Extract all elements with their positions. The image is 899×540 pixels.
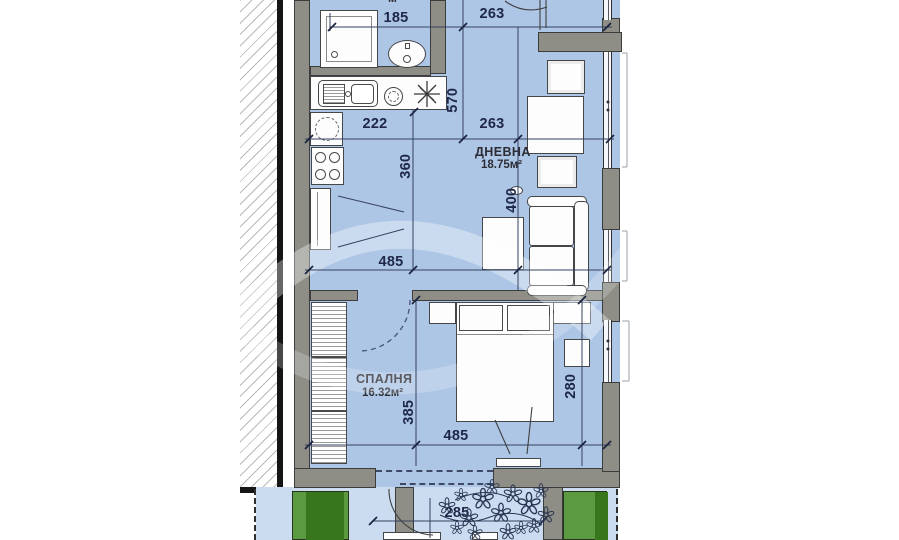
- wardrobe: [311, 302, 347, 464]
- shower-cabin: [320, 10, 378, 68]
- washing-machine: [310, 112, 343, 146]
- window-bedroom: [603, 320, 612, 382]
- kitchen-sink: [318, 80, 378, 107]
- sofa-armrest-bottom: [527, 285, 587, 296]
- wall-pier-corner: [602, 282, 620, 322]
- planter-right: [563, 491, 607, 540]
- dim-label-dining-depth: 400: [505, 180, 520, 220]
- nightstand: [564, 339, 590, 367]
- bed-shelf-left: [429, 302, 456, 324]
- dim-label-entry-width: 263: [472, 7, 512, 22]
- bed-bench: [496, 458, 541, 467]
- terrace-boundary-right: [616, 489, 618, 540]
- window-living-low: [603, 230, 612, 282]
- dim-label-bath-width: 185: [376, 11, 416, 26]
- dim-label-bedroom-right-depth: 280: [564, 366, 579, 406]
- window-entry: [603, 0, 612, 20]
- terrace-door-dashed-bottom: [400, 483, 493, 485]
- dim-label-bedroom-depth: 385: [402, 392, 417, 432]
- dim-label-bedroom-width: 485: [436, 429, 476, 444]
- dining-chair-top: [547, 60, 585, 94]
- wall-bedroom-bottom-right: [493, 468, 620, 488]
- terrace-pier-right: [543, 487, 563, 540]
- wall-pier-bedroom: [602, 382, 620, 472]
- planter-left: [292, 491, 349, 540]
- kitchen-pot: [384, 87, 403, 106]
- bed-shelf-right: [553, 302, 591, 324]
- dim-label-kitchen-width: 222: [355, 117, 395, 132]
- wall-left: [294, 0, 310, 488]
- sofa-back: [574, 201, 589, 291]
- dining-table: [527, 96, 584, 154]
- terrace-table-partial: [383, 532, 441, 540]
- hatch-band: [240, 0, 277, 489]
- bed: [456, 302, 554, 422]
- terrace-item-partial: [472, 532, 498, 540]
- sofa-seat-1: [529, 206, 574, 246]
- hatch-border: [277, 0, 283, 493]
- dim-label-hall-depth: 570: [446, 80, 461, 120]
- sofa-seat-2: [529, 246, 574, 286]
- tall-cabinet: [310, 188, 331, 250]
- wall-entry-band: [538, 32, 622, 52]
- dim-label-living-width: 485: [371, 255, 411, 270]
- dim-label-kitchen-depth: 360: [399, 146, 414, 186]
- window-living-long: [603, 52, 612, 168]
- bathroom-sink: [388, 40, 426, 68]
- floor-plan: м² 185 263 570 222 263 360 400 485 ДНЕВН…: [0, 0, 899, 540]
- room-label-bedroom: СПАЛНЯ: [356, 373, 412, 386]
- wall-bedroom-bottom-left: [294, 468, 376, 488]
- dim-label-living-top-width: 263: [472, 117, 512, 132]
- room-area-living: 18.75м²: [481, 160, 522, 172]
- terrace-door-dashed-top: [376, 470, 493, 472]
- terrace-boundary-left: [254, 489, 256, 540]
- stove: [311, 147, 344, 185]
- dining-chair-bottom: [537, 156, 577, 188]
- wall-divider-left: [310, 290, 358, 301]
- wall-pier-living: [602, 168, 620, 230]
- clipped-area-label: м²: [388, 0, 401, 4]
- room-label-living: ДНЕВНА: [475, 146, 531, 159]
- dim-label-terrace-width: 285: [437, 506, 477, 521]
- room-area-bedroom: 16.32м²: [362, 388, 403, 400]
- wall-bath-right: [430, 0, 446, 74]
- coffee-table: [482, 217, 524, 270]
